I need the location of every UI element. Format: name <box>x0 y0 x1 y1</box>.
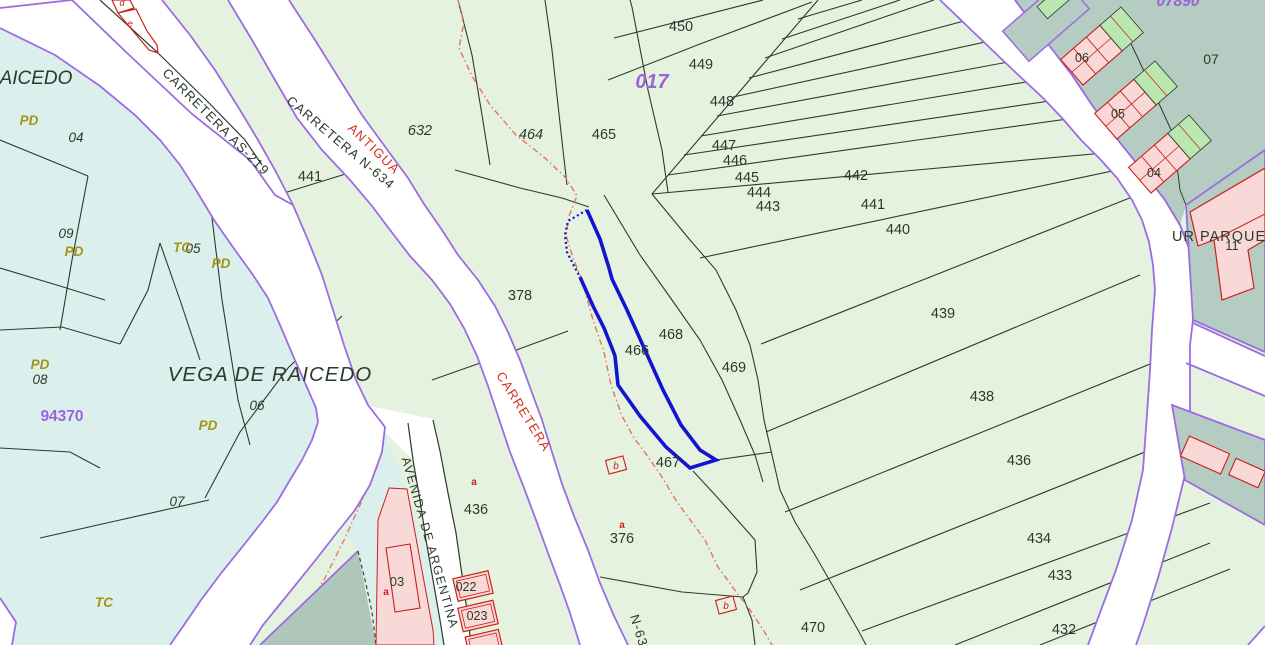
svg-text:UR PARQUEL: UR PARQUEL <box>1172 229 1265 245</box>
svg-text:433: 433 <box>1048 568 1072 584</box>
svg-text:PD: PD <box>212 256 231 271</box>
svg-text:94370: 94370 <box>40 408 83 425</box>
svg-text:08: 08 <box>32 372 48 387</box>
svg-text:11: 11 <box>1225 238 1239 253</box>
svg-text:07: 07 <box>169 494 185 509</box>
svg-text:376: 376 <box>610 531 634 547</box>
svg-text:378: 378 <box>508 288 532 304</box>
svg-text:PD: PD <box>31 357 50 372</box>
svg-text:017: 017 <box>635 71 669 93</box>
svg-text:464: 464 <box>519 127 543 143</box>
svg-text:447: 447 <box>712 138 736 154</box>
svg-text:07890: 07890 <box>1156 0 1199 10</box>
svg-text:b: b <box>723 601 729 612</box>
svg-text:04: 04 <box>1147 166 1161 180</box>
svg-text:465: 465 <box>592 127 616 143</box>
svg-text:a: a <box>383 587 389 598</box>
svg-text:04: 04 <box>68 130 83 145</box>
svg-text:022: 022 <box>456 580 477 594</box>
svg-text:432: 432 <box>1052 622 1076 638</box>
svg-text:PD: PD <box>199 418 218 433</box>
svg-text:VEGA DE RAICEDO: VEGA DE RAICEDO <box>168 363 372 386</box>
svg-text:470: 470 <box>801 620 825 636</box>
svg-text:439: 439 <box>931 306 955 322</box>
svg-text:441: 441 <box>861 197 885 213</box>
svg-text:448: 448 <box>710 94 734 110</box>
svg-text:06: 06 <box>1075 51 1089 65</box>
svg-text:440: 440 <box>886 222 910 238</box>
svg-text:632: 632 <box>408 123 432 139</box>
svg-text:436: 436 <box>464 502 488 518</box>
svg-text:05: 05 <box>1111 107 1125 121</box>
svg-text:023: 023 <box>467 609 488 623</box>
svg-text:449: 449 <box>689 57 713 73</box>
svg-text:a: a <box>471 477 477 488</box>
svg-text:443: 443 <box>756 199 780 215</box>
svg-text:06: 06 <box>249 398 265 413</box>
svg-text:442: 442 <box>844 168 868 184</box>
svg-text:07: 07 <box>1203 51 1219 67</box>
svg-text:e: e <box>127 19 133 30</box>
svg-text:467: 467 <box>656 455 680 471</box>
svg-text:436: 436 <box>1007 453 1031 469</box>
svg-text:a: a <box>619 520 625 531</box>
svg-text:466: 466 <box>625 343 649 359</box>
svg-text:446: 446 <box>723 153 747 169</box>
svg-text:450: 450 <box>669 19 693 35</box>
svg-text:PD: PD <box>65 244 84 259</box>
svg-text:445: 445 <box>735 170 759 186</box>
svg-text:09: 09 <box>58 226 74 241</box>
svg-text:b: b <box>613 461 619 472</box>
svg-text:03: 03 <box>390 574 404 589</box>
svg-text:438: 438 <box>970 389 994 405</box>
svg-text:441: 441 <box>298 169 322 185</box>
svg-text:469: 469 <box>722 360 746 376</box>
svg-text:TC: TC <box>173 240 191 255</box>
svg-text:PD: PD <box>20 113 39 128</box>
svg-text:AICEDO: AICEDO <box>0 68 73 89</box>
svg-text:TC: TC <box>95 595 113 610</box>
svg-text:468: 468 <box>659 327 683 343</box>
svg-text:434: 434 <box>1027 531 1051 547</box>
